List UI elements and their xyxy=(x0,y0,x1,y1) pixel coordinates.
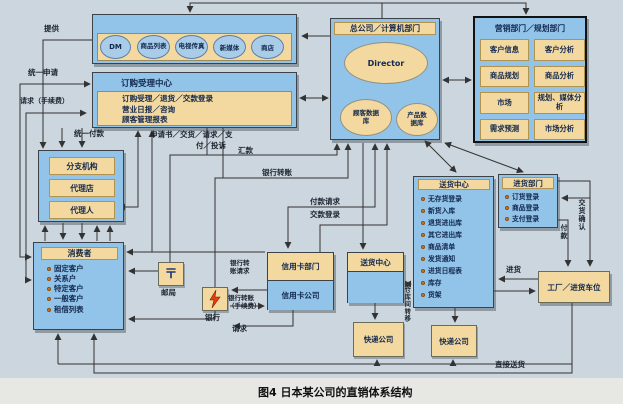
delivery-center-item: 进货日程表 xyxy=(421,265,462,277)
postal-mark-icon: 〒 xyxy=(164,268,177,281)
head-office-box: 总公司／计算机部门 Director 顾客数据 库 产品数 据库 xyxy=(330,18,440,140)
purchase-dept-title: 进货部门 xyxy=(502,177,554,189)
marketing-title: 营销部门／规划部门 xyxy=(475,23,585,34)
order-line-1: 订购受理／退货／交款登录 xyxy=(122,94,213,105)
label-direct-delivery: 直接送货 xyxy=(495,360,525,369)
label-payment-request: 付款请求 xyxy=(310,197,340,206)
media-box: DM 商品列表 电视传真 新媒体 商店 xyxy=(92,14,297,64)
bullet-icon xyxy=(421,209,425,213)
bullet-icon xyxy=(421,257,425,261)
marketing-cell-market: 市场 xyxy=(480,92,529,114)
label-application-bundle-2: 付／投诉 xyxy=(196,141,226,150)
delivery-center-item: 退货进出库 xyxy=(421,217,462,229)
consumer-item: 特定客户 xyxy=(47,284,84,294)
label-bank-transfer: 银行转账 xyxy=(262,168,292,177)
product-db-oval: 产品数 据库 xyxy=(396,103,438,136)
label-request-fee: 请求（手续费） xyxy=(20,97,69,106)
credit-company-label: 信用卡公司 xyxy=(268,281,333,310)
consumer-box: 消费者 固定客户 关系户 特定客户 一般客户 租借列表 xyxy=(33,242,124,330)
marketing-grid: 客户信息 客户分析 商品规划 商品分析 市场 规划、媒体分析 需求预测 市场分析 xyxy=(480,39,584,140)
factory-box: 工厂／进货车位 xyxy=(538,271,610,303)
consumer-item: 租借列表 xyxy=(47,305,84,315)
branch-box: 分支机构 代理店 代理人 xyxy=(38,150,124,222)
marketing-cell-market-analysis: 市场分析 xyxy=(534,119,585,141)
consumer-title: 消费者 xyxy=(41,247,118,260)
customer-db-oval: 顾客数据 库 xyxy=(340,99,392,136)
credit-card-box: 信用卡部门 信用卡公司 xyxy=(267,252,334,310)
delivery-center-item: 其它进出库 xyxy=(421,229,462,241)
delivery-center-title: 送货中心 xyxy=(418,179,490,190)
bullet-icon xyxy=(421,269,425,273)
label-delivery-confirm: 交货确认 xyxy=(578,199,585,241)
purchase-dept-item: 支付登录 xyxy=(505,214,539,225)
marketing-box: 营销部门／规划部门 客户信息 客户分析 商品规划 商品分析 市场 规划、媒体分析… xyxy=(473,16,587,143)
delivery-center-item: 新货入库 xyxy=(421,205,462,217)
channel-oval-dm: DM xyxy=(100,35,131,59)
label-payment-registration: 交款登录 xyxy=(310,210,340,219)
delivery-center-item: 无存货登录 xyxy=(421,193,462,205)
bullet-icon xyxy=(47,267,51,271)
label-application-bundle-1: 申请书／交货／请求／支 xyxy=(150,130,233,139)
delivery-center-item: 商品清单 xyxy=(421,241,462,253)
marketing-cell-media-analysis: 规划、媒体分析 xyxy=(534,92,585,114)
bullet-icon xyxy=(421,197,425,201)
purchase-dept-item: 订货登录 xyxy=(505,192,539,203)
bullet-icon xyxy=(47,308,51,312)
bullet-icon xyxy=(505,206,509,210)
post-office-label: 邮局 xyxy=(161,288,176,297)
order-center-box: 订购受理中心 订购受理／退货／交款登录 营业日报／咨询 顾客管理报表 xyxy=(92,72,297,128)
delivery-center-item: 发货通知 xyxy=(421,253,462,265)
label-bank-transfer-request: 银行转 账请求 xyxy=(230,259,250,275)
purchase-dept-box: 进货部门 订货登录 商品登录 支付登录 xyxy=(498,174,558,228)
delivery-center-item: 货架 xyxy=(421,289,462,301)
order-line-3: 顾客管理报表 xyxy=(122,115,213,126)
bullet-icon xyxy=(505,217,509,221)
order-center-body: 订购受理／退货／交款登录 营业日报／咨询 顾客管理报表 xyxy=(97,91,292,126)
head-office-title: 总公司／计算机部门 xyxy=(334,22,436,35)
bank-label: 银行 xyxy=(205,313,220,322)
lightning-icon xyxy=(209,290,221,308)
label-unified-payment: 统一付款 xyxy=(74,129,104,138)
channel-oval-catalog: 商品列表 xyxy=(137,35,170,59)
channel-oval-shop: 商店 xyxy=(251,35,284,59)
director-oval: Director xyxy=(344,42,428,84)
marketing-cell-customer-info: 客户信息 xyxy=(480,39,529,61)
delivery-center-item: 库存 xyxy=(421,277,462,289)
bullet-icon xyxy=(421,281,425,285)
marketing-cell-demand-forecast: 需求预测 xyxy=(480,119,529,141)
label-warehouse-transfer: 仓库间转移 xyxy=(403,286,409,328)
bullet-icon xyxy=(47,297,51,301)
bullet-icon xyxy=(421,293,425,297)
channel-oval-newmedia: 新媒体 xyxy=(213,35,246,59)
purchase-dept-item: 商品登录 xyxy=(505,203,539,214)
express-company-box-2: 快递公司 xyxy=(431,325,477,357)
figure-caption: 图4 日本某公司的直销体系结构 xyxy=(258,384,412,400)
bullet-icon xyxy=(47,287,51,291)
branch-item-org: 分支机构 xyxy=(49,157,115,175)
marketing-cell-product-analysis: 商品分析 xyxy=(534,66,585,88)
label-unified-application: 统一申请 xyxy=(28,68,58,77)
label-remittance: 汇款 xyxy=(238,146,253,155)
diagram-root: DM 商品列表 电视传真 新媒体 商店 订购受理中心 订购受理／退货／交款登录 … xyxy=(0,0,623,404)
post-office-box: 〒 xyxy=(158,262,184,286)
marketing-cell-customer-analysis: 客户分析 xyxy=(534,39,585,61)
channel-oval-tvfax: 电视传真 xyxy=(175,35,208,59)
consumer-item: 关系户 xyxy=(47,274,84,284)
delivery-subcenter-body xyxy=(348,272,403,303)
order-line-2: 营业日报／咨询 xyxy=(122,105,213,116)
label-request: 请求 xyxy=(232,324,247,333)
marketing-cell-product-planning: 商品规划 xyxy=(480,66,529,88)
bullet-icon xyxy=(47,277,51,281)
label-payment: 付款 xyxy=(560,224,567,246)
bullet-icon xyxy=(421,221,425,225)
credit-dept-label: 信用卡部门 xyxy=(268,253,333,281)
consumer-item: 固定客户 xyxy=(47,264,84,274)
label-bank-transfer-fee: 银行转账 （手续费） xyxy=(228,294,261,310)
bullet-icon xyxy=(505,195,509,199)
branch-item-agency: 代理店 xyxy=(49,179,115,197)
express-company-box-1: 快递公司 xyxy=(353,322,404,357)
bullet-icon xyxy=(421,245,425,249)
branch-item-agent: 代理人 xyxy=(49,201,115,219)
label-incoming-goods: 进货 xyxy=(506,265,521,274)
bank-box xyxy=(202,287,228,311)
consumer-item: 一般客户 xyxy=(47,294,84,304)
delivery-subcenter-title: 送货中心 xyxy=(348,253,403,272)
label-provide: 提供 xyxy=(44,24,59,33)
delivery-subcenter-box: 送货中心 xyxy=(347,252,404,303)
bullet-icon xyxy=(421,233,425,237)
order-center-title: 订购受理中心 xyxy=(121,77,172,89)
delivery-center-box: 送货中心 无存货登录 新货入库 退货进出库 其它进出库 商品清单 发货通知 进货… xyxy=(413,176,494,308)
